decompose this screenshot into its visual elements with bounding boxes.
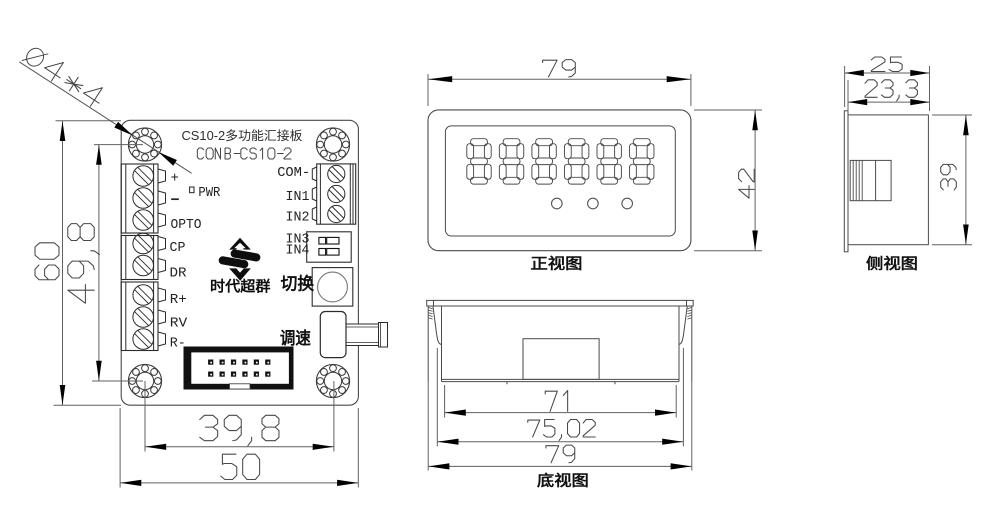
svg-text:OPTO: OPTO	[171, 217, 202, 233]
svg-text:CP: CP	[170, 240, 186, 256]
svg-text:PWR: PWR	[198, 185, 221, 201]
svg-text:R+: R+	[170, 292, 187, 308]
svg-text:R-: R-	[170, 335, 186, 351]
svg-text:正视图: 正视图	[531, 254, 583, 272]
svg-text:CS10-2多功能汇接板: CS10-2多功能汇接板	[182, 128, 304, 143]
svg-text:时代超群: 时代超群	[210, 277, 271, 295]
svg-text:+: +	[171, 170, 179, 186]
svg-text:调速: 调速	[280, 328, 311, 348]
svg-text:DR: DR	[170, 266, 188, 282]
svg-text:侧视图: 侧视图	[866, 255, 918, 273]
svg-text:IN1: IN1	[286, 189, 310, 205]
svg-text:IN2: IN2	[286, 209, 310, 225]
svg-text:底视图: 底视图	[537, 472, 589, 490]
svg-text:RV: RV	[170, 316, 188, 332]
svg-text:COM-: COM-	[277, 165, 310, 181]
svg-text:切换: 切换	[281, 273, 315, 293]
svg-text:IN4: IN4	[286, 243, 310, 259]
